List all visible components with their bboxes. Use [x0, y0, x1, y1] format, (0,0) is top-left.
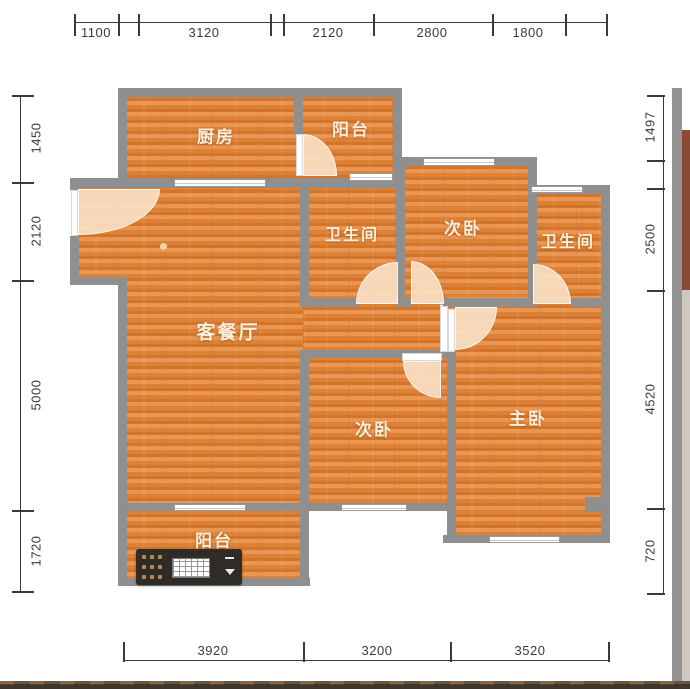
- dim-tick: [12, 510, 34, 512]
- dim-tick: [450, 642, 452, 662]
- ac-minus-icon: [225, 557, 234, 559]
- floor-spot: [160, 243, 167, 250]
- room-label-kitchen: 厨房: [197, 123, 235, 148]
- window: [349, 173, 393, 181]
- dim-tick: [12, 182, 34, 184]
- dim-tick: [283, 14, 285, 36]
- dim-value-right: 1497: [643, 112, 658, 143]
- wall: [601, 185, 610, 307]
- window: [341, 504, 407, 511]
- wall: [300, 178, 309, 307]
- dim-tick: [647, 593, 665, 595]
- room-label-balcony-top: 阳台: [332, 116, 370, 141]
- dim-value-top: 3120: [189, 25, 220, 40]
- dim-value-top: 1800: [513, 25, 544, 40]
- dim-tick: [606, 14, 608, 36]
- dim-value-bottom: 3920: [198, 643, 229, 658]
- room-label-bathroom-1: 卫生间: [325, 221, 379, 245]
- wall: [303, 298, 358, 307]
- adjacent-image-edge: [672, 88, 682, 689]
- wall: [300, 350, 309, 511]
- ac-dots: [142, 555, 168, 559]
- bottom-image-edge-texture: [0, 681, 690, 685]
- wall: [447, 352, 456, 543]
- window: [423, 158, 495, 166]
- dim-tick: [608, 642, 610, 662]
- room-label-bathroom-2: 卫生间: [541, 228, 595, 252]
- dim-value-left: 1720: [29, 536, 44, 567]
- room-label-bedroom-upper: 次卧: [444, 215, 482, 240]
- dim-tick: [138, 14, 140, 36]
- dim-tick: [118, 14, 120, 36]
- dim-value-left: 5000: [29, 380, 44, 411]
- kitchen-balcony-door-leaf: [296, 134, 303, 176]
- dim-tick: [647, 290, 665, 292]
- dim-tick: [647, 95, 665, 97]
- wall: [300, 506, 309, 586]
- dim-value-right: 720: [643, 539, 658, 562]
- dim-tick: [12, 95, 34, 97]
- dim-tick: [12, 280, 34, 282]
- dimension-line-top: [74, 22, 608, 23]
- master-door-leaf: [448, 309, 455, 352]
- floor-living-dining: [120, 182, 310, 510]
- ac-arrow-down-icon: [225, 569, 235, 575]
- dimension-line-bottom: [123, 660, 610, 661]
- dim-value-bottom: 3520: [515, 643, 546, 658]
- dim-value-bottom: 3200: [362, 643, 393, 658]
- dim-tick: [565, 14, 567, 36]
- floorplan-image: 厨房 阳台 卫生间 次卧 卫生间 客餐厅 次卧 主卧 阳台 1100 3120 …: [0, 0, 690, 689]
- ac-unit-icon: [136, 549, 242, 585]
- window: [489, 536, 560, 543]
- entry-door-leaf: [71, 190, 78, 236]
- adjacent-image-sliver: [682, 290, 690, 689]
- dim-tick: [12, 591, 34, 593]
- dim-tick: [492, 14, 494, 36]
- ac-vent-grid: [172, 558, 210, 578]
- wall: [118, 277, 127, 511]
- window: [174, 179, 266, 187]
- dimension-line-left: [20, 95, 21, 593]
- dim-value-right: 2500: [643, 224, 658, 255]
- dim-tick: [270, 14, 272, 36]
- window: [531, 186, 583, 193]
- dim-tick: [123, 642, 125, 662]
- wall: [70, 236, 79, 285]
- dim-tick: [647, 160, 665, 162]
- room-label-bedroom-lower: 次卧: [355, 416, 393, 441]
- dim-value-top: 1100: [81, 25, 111, 40]
- floor-hallway: [303, 299, 440, 357]
- room-label-balcony-bottom: 阳台: [195, 527, 233, 552]
- dim-tick: [303, 642, 305, 662]
- room-label-living-dining: 客餐厅: [196, 318, 259, 345]
- window: [174, 504, 246, 511]
- ac-dots: [142, 565, 168, 569]
- dim-tick: [647, 188, 665, 190]
- wall: [294, 88, 303, 135]
- room-label-bedroom-master: 主卧: [509, 405, 547, 430]
- wall: [118, 88, 402, 97]
- wall: [118, 88, 127, 186]
- master-door-threshold: [440, 306, 448, 352]
- wall-protrusion: [585, 497, 610, 512]
- dim-value-right: 4520: [643, 384, 658, 415]
- dim-value-top: 2120: [313, 25, 344, 40]
- dim-value-left: 1450: [29, 123, 44, 154]
- dim-value-top: 2800: [417, 25, 448, 40]
- bedroom-lower-door-leaf: [402, 353, 442, 361]
- dim-tick: [647, 508, 665, 510]
- wall: [118, 506, 127, 586]
- dim-tick: [74, 14, 76, 36]
- ac-dots: [142, 575, 168, 579]
- adjacent-image-sliver: [682, 130, 690, 290]
- dim-tick: [373, 14, 375, 36]
- wall: [443, 298, 533, 307]
- dim-value-left: 2120: [29, 216, 44, 247]
- dimension-line-right: [663, 95, 664, 595]
